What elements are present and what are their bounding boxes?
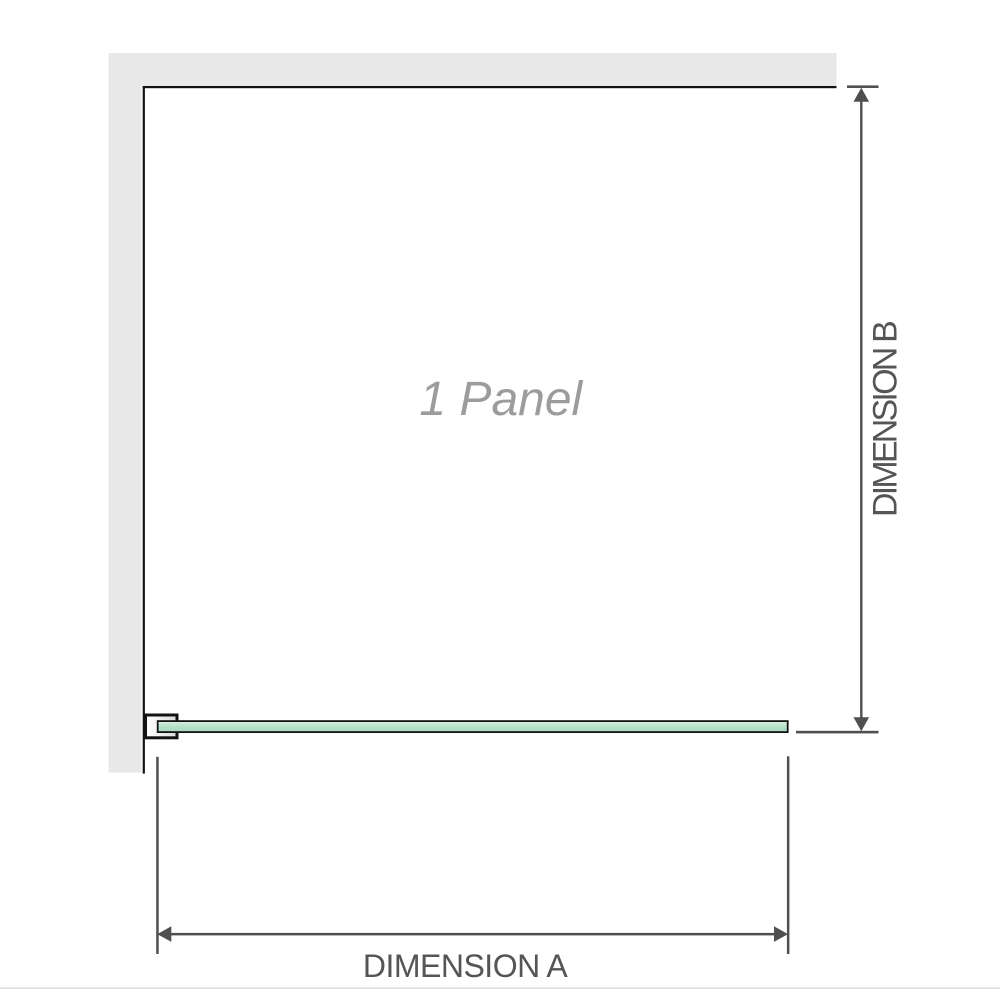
svg-text:1 Panel: 1 Panel xyxy=(419,373,583,426)
svg-text:DIMENSION B: DIMENSION B xyxy=(867,322,905,517)
svg-text:DIMENSION A: DIMENSION A xyxy=(363,948,568,984)
